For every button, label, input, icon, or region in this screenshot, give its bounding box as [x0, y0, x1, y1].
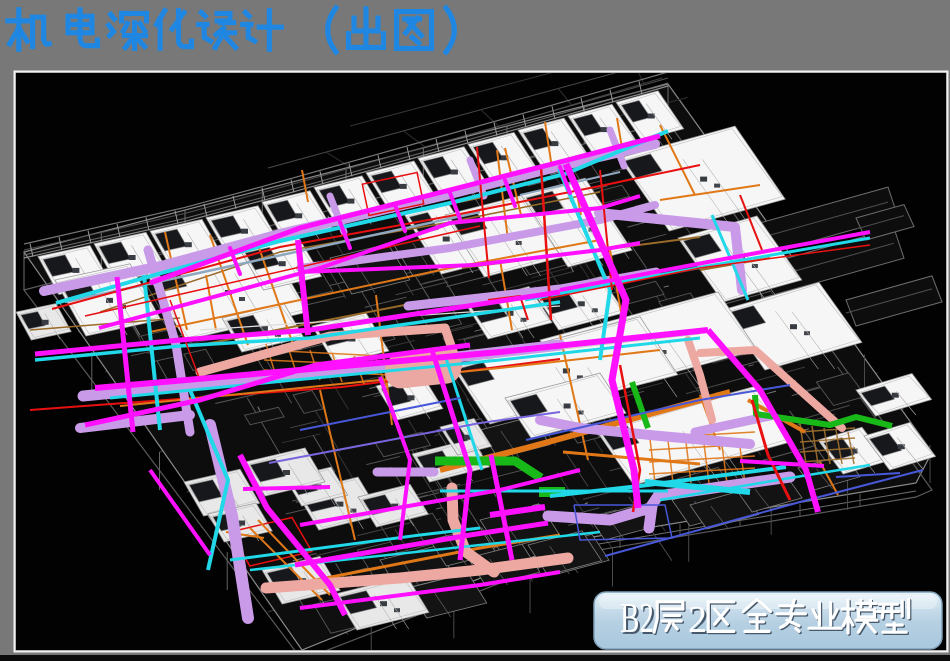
svg-text:B2: B2 — [620, 596, 654, 642]
svg-text:2: 2 — [688, 599, 707, 641]
